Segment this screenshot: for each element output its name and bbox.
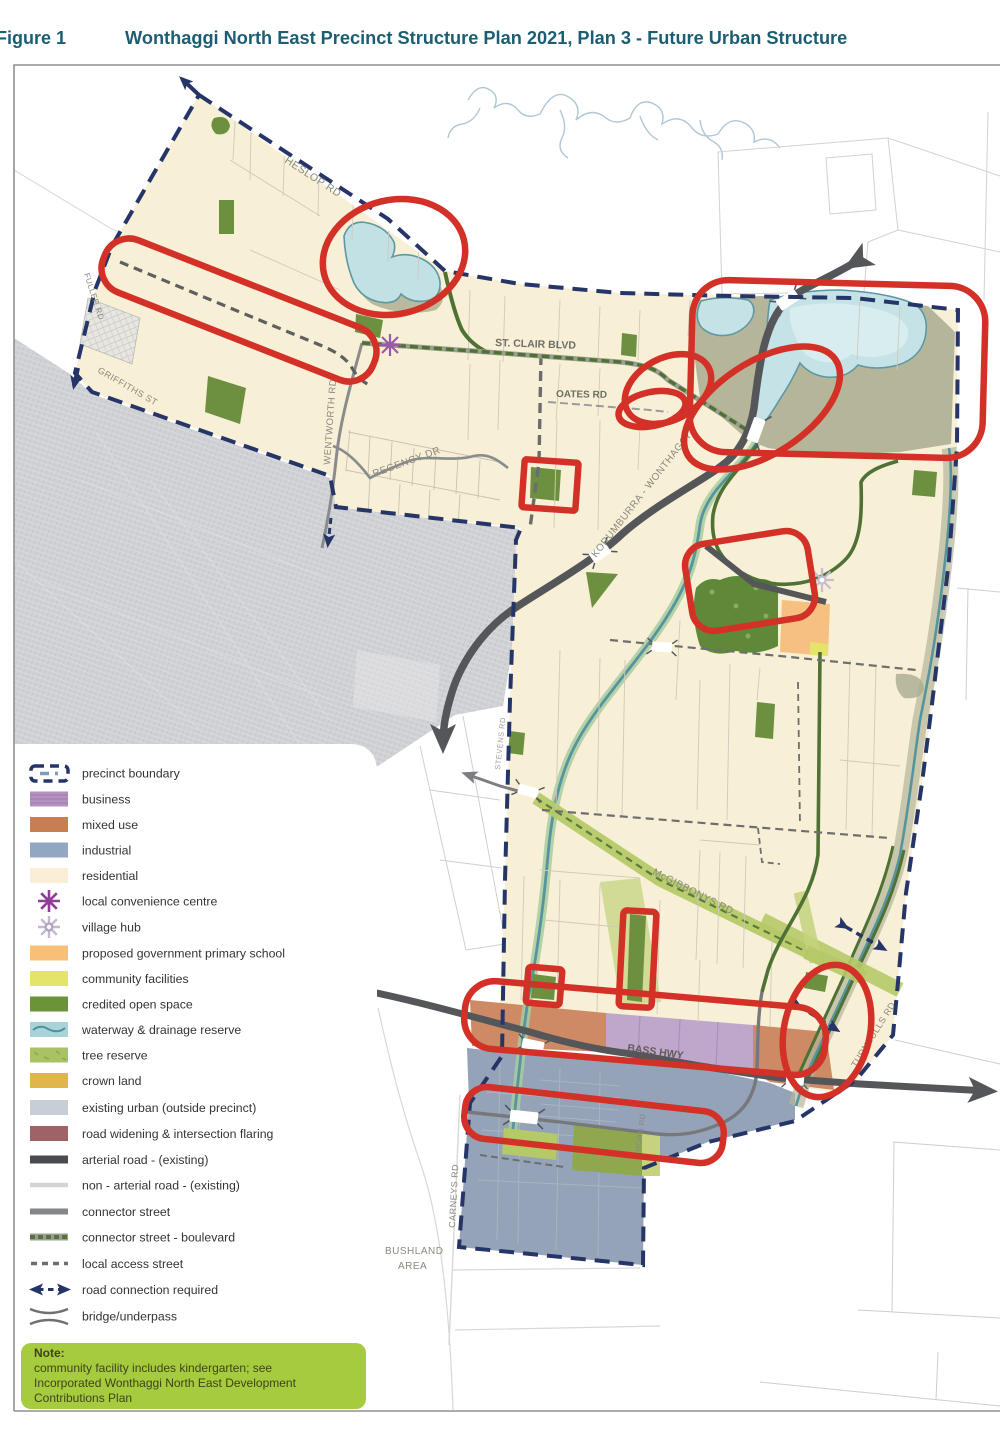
svg-text:AREA: AREA [398,1261,427,1272]
svg-text:Figure 1: Figure 1 [0,28,66,48]
svg-text:road connection required: road connection required [82,1283,218,1297]
svg-text:local convenience centre: local convenience centre [82,895,218,909]
svg-text:bridge/underpass: bridge/underpass [82,1310,177,1324]
svg-text:community facilities: community facilities [82,972,189,986]
svg-text:mixed use: mixed use [82,818,138,832]
svg-text:waterway & drainage reserve: waterway & drainage reserve [81,1023,241,1037]
svg-text:crown land: crown land [82,1074,142,1088]
svg-text:residential: residential [82,869,138,883]
svg-text:existing urban (outside precin: existing urban (outside precinct) [82,1101,256,1115]
svg-text:local access street: local access street [82,1257,184,1271]
svg-text:village hub: village hub [82,921,141,935]
svg-text:industrial: industrial [82,844,131,858]
svg-text:Incorporated Wonthaggi North E: Incorporated Wonthaggi North East Develo… [34,1376,297,1390]
svg-text:tree reserve: tree reserve [82,1049,148,1063]
svg-text:Note:: Note: [34,1346,65,1360]
svg-text:connector street: connector street [82,1205,171,1219]
svg-text:proposed government primary sc: proposed government primary school [82,947,285,961]
svg-text:business: business [82,793,131,807]
svg-text:Wonthaggi North East Precinct: Wonthaggi North East Precinct Structure … [125,28,847,48]
svg-text:connector street - boulevard: connector street - boulevard [82,1231,235,1245]
svg-text:non - arterial road - (existin: non - arterial road - (existing) [82,1179,240,1193]
svg-text:arterial road - (existing): arterial road - (existing) [82,1153,208,1167]
svg-text:community facility includes ki: community facility includes kindergarten… [34,1361,272,1375]
svg-text:OATES RD: OATES RD [556,389,607,401]
svg-text:BUSHLAND: BUSHLAND [385,1246,443,1257]
svg-text:precinct boundary: precinct boundary [82,767,181,781]
svg-text:road widening & intersection f: road widening & intersection flaring [82,1127,274,1141]
svg-text:Contributions Plan: Contributions Plan [34,1391,132,1405]
svg-text:credited open space: credited open space [82,998,193,1012]
